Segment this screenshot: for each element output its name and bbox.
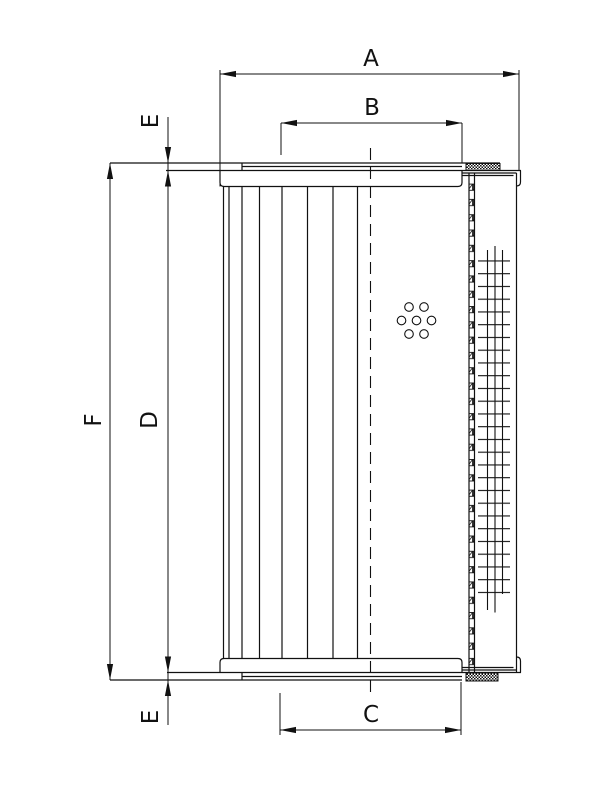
arrowhead	[165, 657, 171, 673]
drawing-sheet: A B C F D E E	[0, 0, 612, 792]
dim-label-e-top: E	[138, 114, 164, 129]
hole	[412, 316, 421, 325]
arrowhead	[165, 680, 171, 696]
dim-label-b: B	[364, 95, 380, 121]
arrowhead	[503, 71, 519, 77]
arrowhead	[107, 163, 113, 179]
dimensions	[107, 70, 519, 735]
core-tube	[469, 173, 475, 673]
dim-label-d: D	[137, 411, 163, 429]
hole	[397, 316, 406, 325]
dimension-labels: A B C F D E E	[81, 46, 380, 728]
arrowhead	[107, 664, 113, 680]
bottom-gasket	[466, 673, 498, 681]
dim-label-e-bottom: E	[138, 710, 164, 725]
filter-element-drawing: A B C F D E E	[0, 0, 612, 792]
hole-pattern	[397, 303, 436, 339]
bottom-end-cap	[220, 659, 462, 673]
dim-label-f: F	[81, 413, 107, 426]
bottom-end-plate	[110, 673, 521, 681]
top-end-cap	[220, 171, 462, 187]
hole	[420, 303, 429, 312]
arrowhead	[445, 727, 461, 733]
hole	[405, 303, 414, 312]
top-gasket	[466, 164, 500, 171]
hole	[405, 330, 414, 339]
arrowhead	[281, 120, 297, 126]
dimension-d-e	[165, 117, 171, 725]
dimension-f	[107, 163, 113, 680]
wire-mesh	[478, 246, 510, 613]
arrowhead	[446, 120, 462, 126]
dimension-b	[281, 120, 462, 163]
arrowhead	[165, 171, 171, 187]
hole	[427, 316, 436, 325]
pleat-lines	[224, 187, 358, 659]
arrowhead	[220, 71, 236, 77]
part-geometry	[110, 148, 521, 693]
hole	[420, 330, 429, 339]
top-end-plate	[110, 163, 521, 171]
dim-label-a: A	[363, 46, 379, 72]
dim-label-c: C	[363, 702, 379, 728]
arrowhead	[280, 727, 296, 733]
arrowhead	[165, 147, 171, 163]
